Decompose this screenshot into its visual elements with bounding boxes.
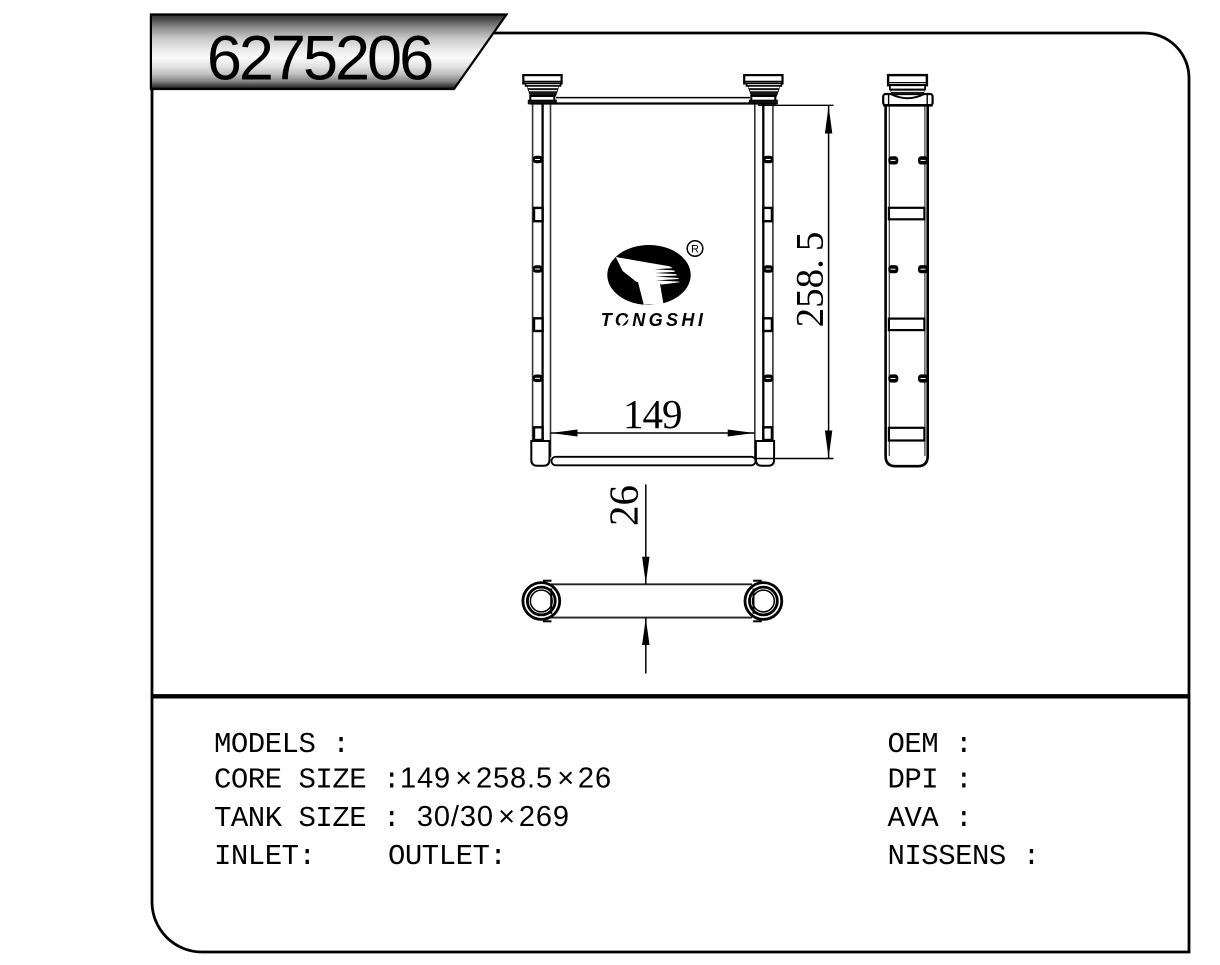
svg-text:OUTLET:: OUTLET: [388, 840, 506, 873]
svg-text:MODELS :: MODELS : [214, 728, 349, 761]
svg-text:OEM :: OEM : [888, 728, 973, 761]
svg-text:149: 149 [623, 391, 682, 437]
svg-text:26: 26 [601, 485, 647, 526]
svg-text:R: R [691, 243, 699, 255]
svg-text:INLET:: INLET: [214, 840, 315, 873]
svg-text:258.5: 258.5 [789, 232, 832, 328]
svg-text:DPI :: DPI : [888, 764, 973, 797]
svg-text:CORE SIZE :149×258.5×26: CORE SIZE :149×258.5×26 [214, 763, 612, 797]
svg-text:AVA :: AVA : [888, 802, 973, 835]
svg-text:6275206: 6275206 [207, 24, 432, 94]
svg-text:NISSENS :: NISSENS : [888, 840, 1040, 873]
svg-text:TANK SIZE : 30/30×269: TANK SIZE : 30/30×269 [214, 801, 570, 835]
svg-text:TONGSHI: TONGSHI [601, 310, 706, 330]
